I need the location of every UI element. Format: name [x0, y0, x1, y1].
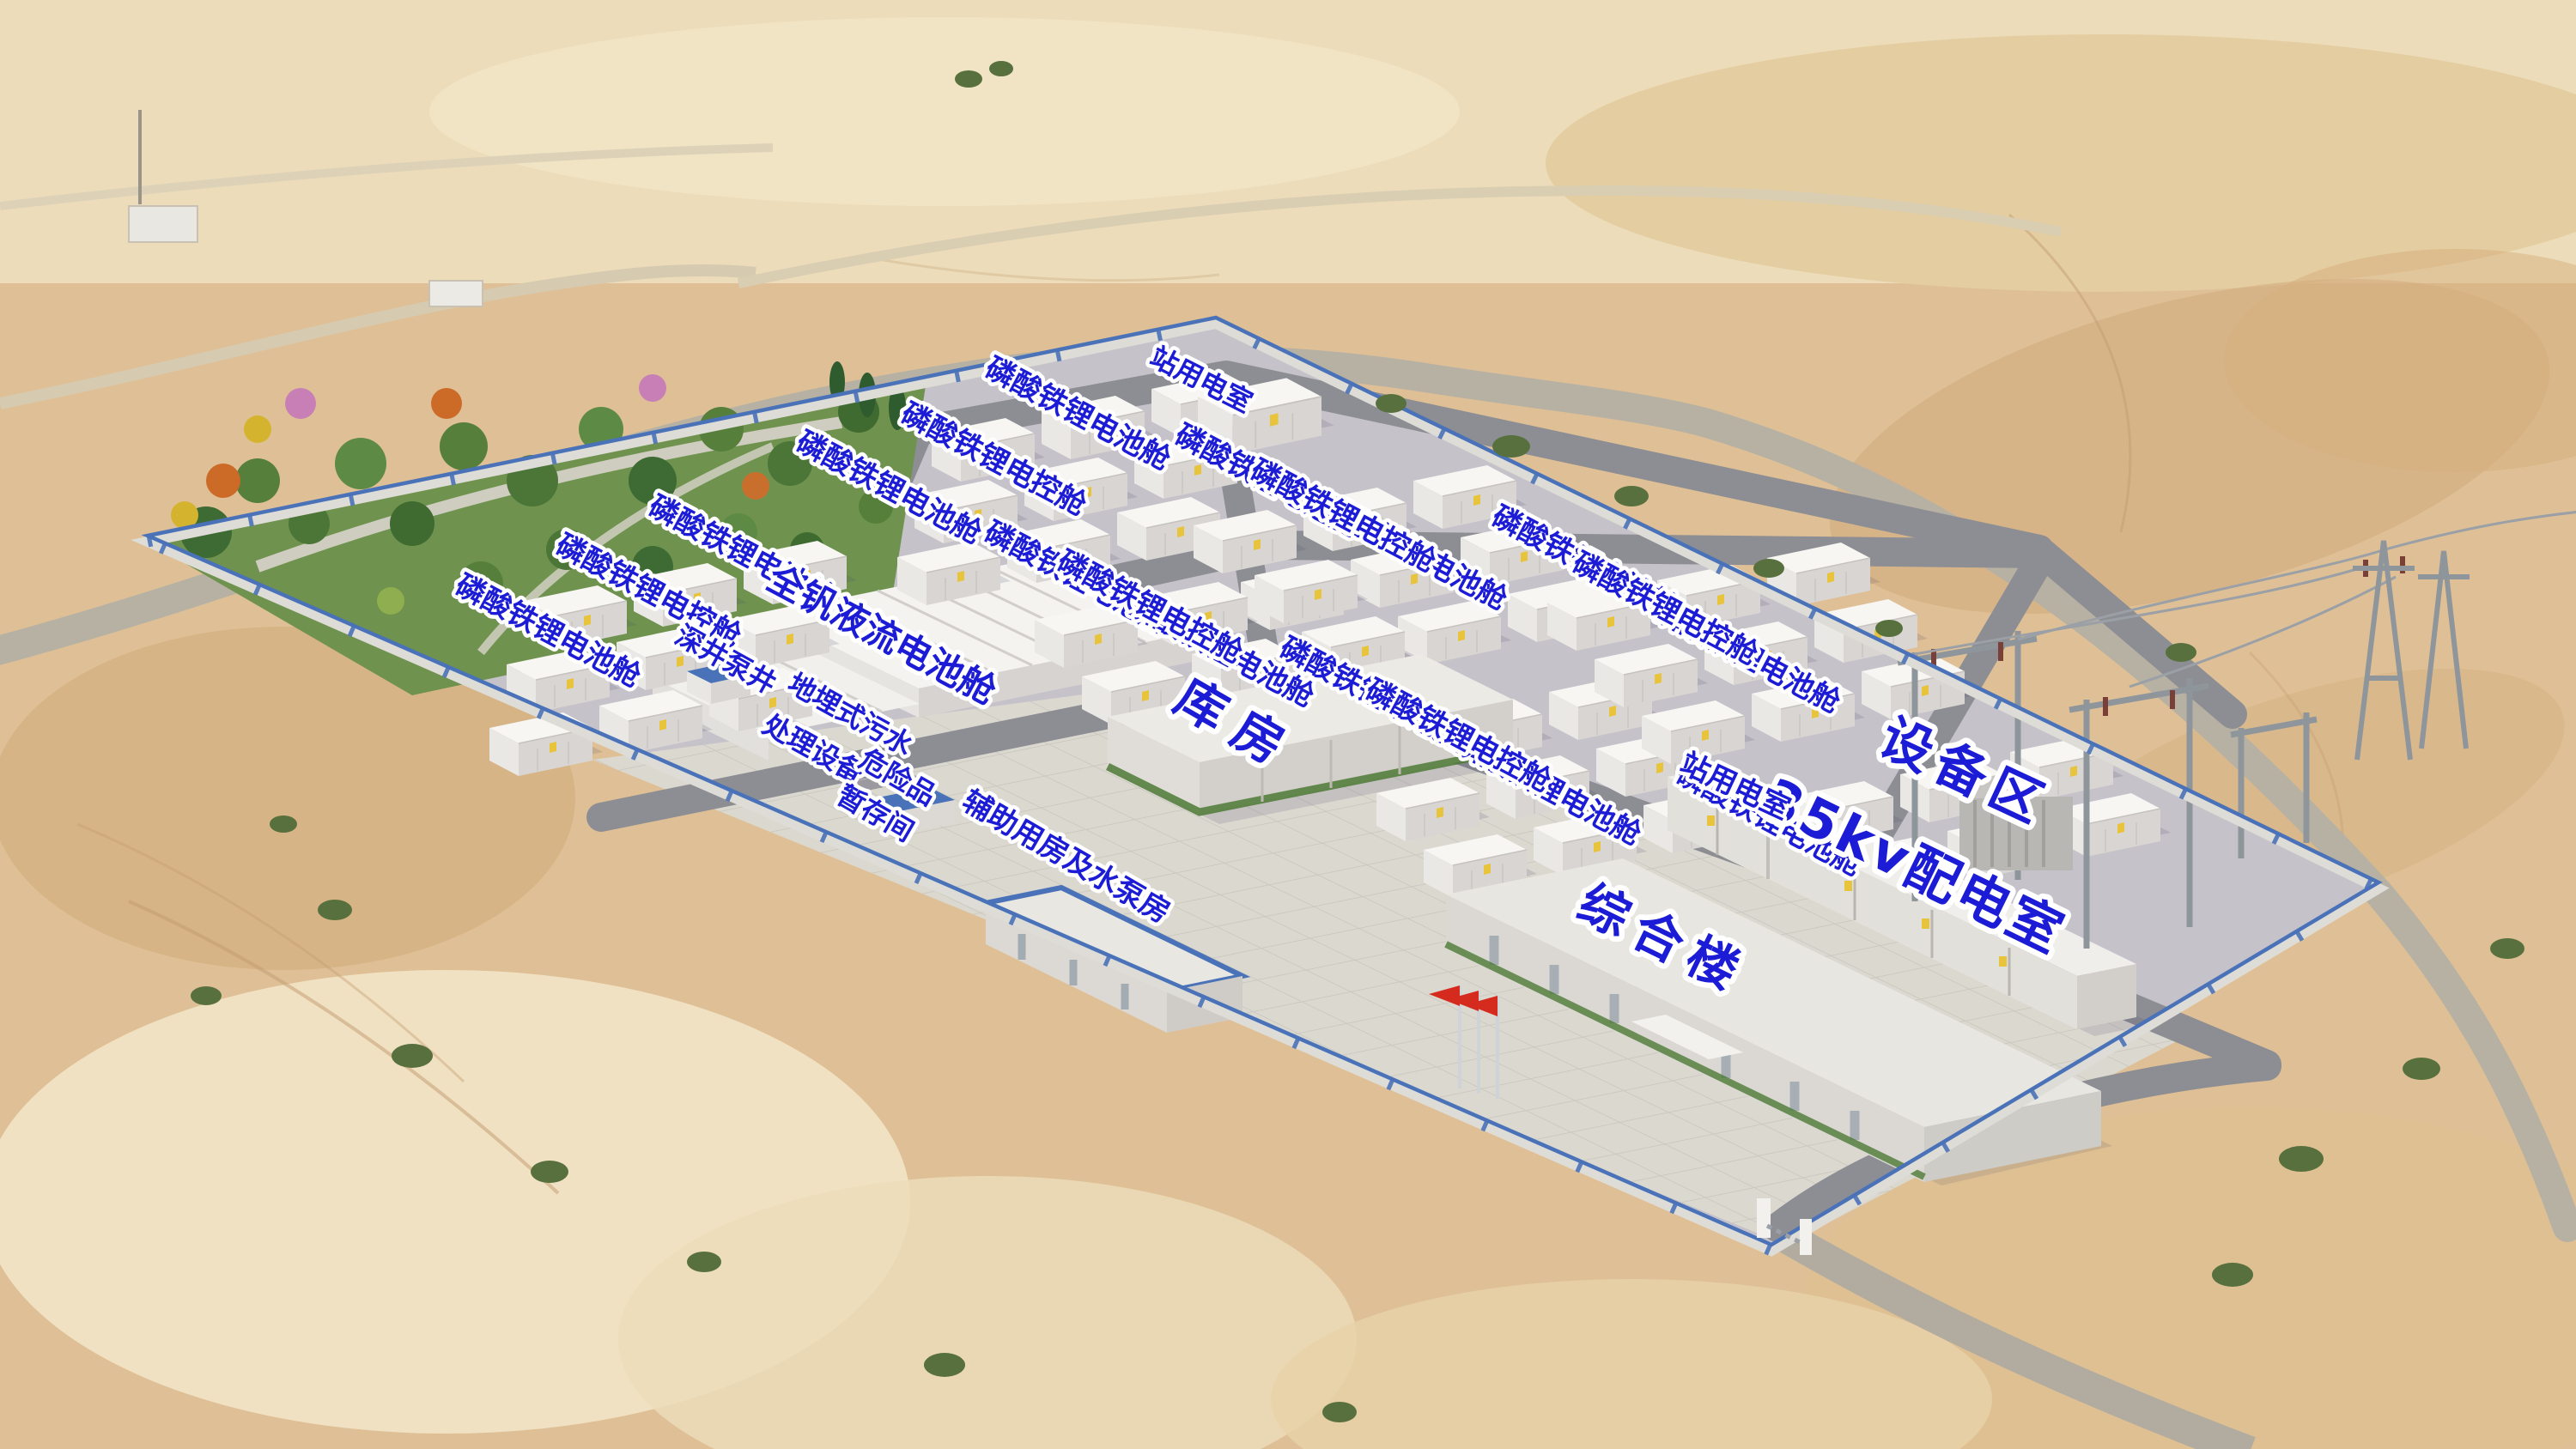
blossom-tree — [285, 388, 316, 419]
scene: 磷酸铁锂电池舱 磷酸铁锂电池舱 磷酸铁锂电池舱 磷酸铁锂电池舱 磷酸铁锂电池舱 … — [0, 0, 2576, 1449]
distant-building — [429, 281, 483, 306]
distant-building — [129, 206, 197, 242]
autumn-tree — [206, 464, 240, 498]
aerial-site-rendering: 磷酸铁锂电池舱 磷酸铁锂电池舱 磷酸铁锂电池舱 磷酸铁锂电池舱 磷酸铁锂电池舱 … — [0, 0, 2576, 1449]
yellow-shrub — [244, 415, 271, 443]
